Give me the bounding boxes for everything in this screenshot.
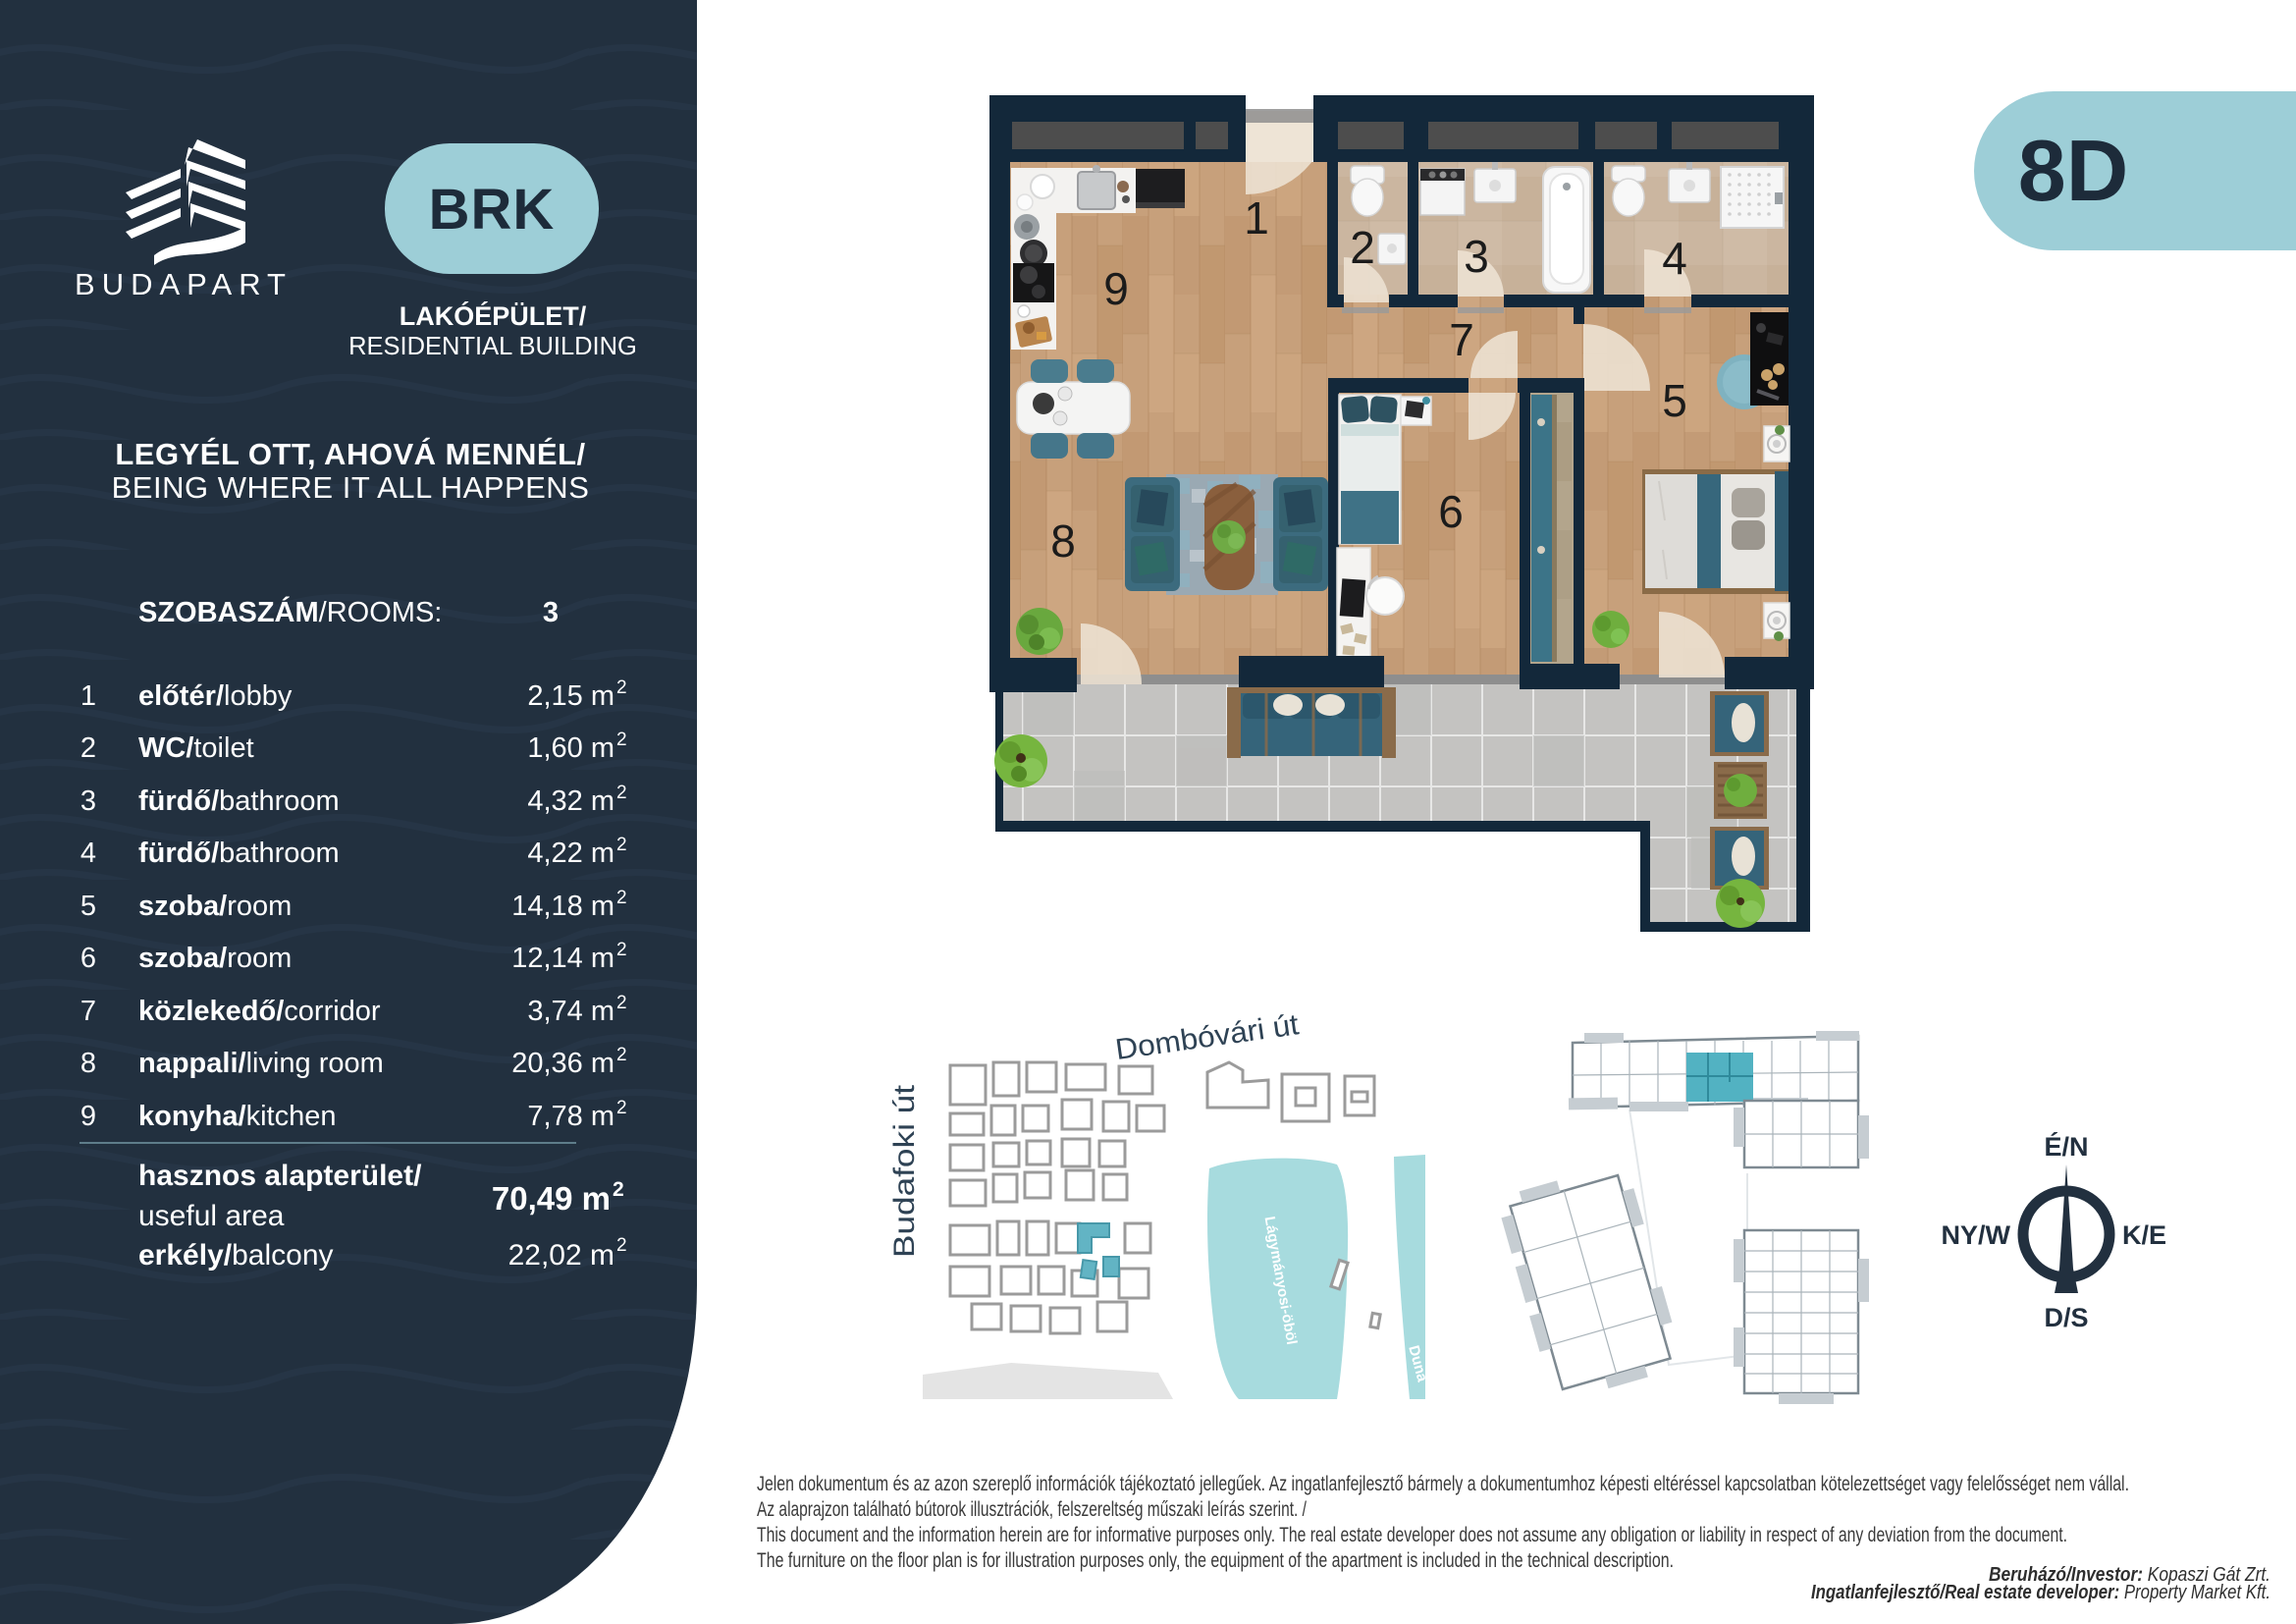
svg-text:BRK: BRK	[429, 178, 556, 242]
svg-text:2: 2	[616, 940, 627, 960]
svg-text:This document and the informat: This document and the information herein…	[757, 1524, 2067, 1546]
svg-text:3: 3	[1464, 231, 1489, 282]
svg-text:K/E: K/E	[2122, 1220, 2166, 1250]
svg-text:nappali/living room: nappali/living room	[138, 1048, 384, 1079]
svg-text:12,14 m: 12,14 m	[511, 943, 614, 974]
svg-text:Jelen dokumentum és az azon sz: Jelen dokumentum és az azon szereplő inf…	[757, 1473, 2129, 1495]
svg-text:6: 6	[80, 943, 96, 974]
svg-text:Ingatlanfejlesztő/Real estate: Ingatlanfejlesztő/Real estate developer:…	[1811, 1582, 2270, 1603]
svg-text:LEGYÉL OTT, AHOVÁ MENNÉL/: LEGYÉL OTT, AHOVÁ MENNÉL/	[115, 437, 585, 471]
svg-text:hasznos alapterület/: hasznos alapterület/	[138, 1160, 422, 1192]
svg-text:2: 2	[616, 677, 627, 698]
svg-text:9: 9	[80, 1101, 96, 1132]
svg-text:BUDAPART: BUDAPART	[75, 267, 293, 301]
svg-text:useful area: useful area	[138, 1200, 285, 1232]
svg-text:SZOBASZÁM/ROOMS:: SZOBASZÁM/ROOMS:	[138, 595, 442, 628]
svg-text:É/N: É/N	[2044, 1131, 2088, 1162]
svg-text:fürdő/bathroom: fürdő/bathroom	[138, 785, 340, 817]
svg-text:2: 2	[1350, 222, 1375, 273]
svg-text:5: 5	[80, 891, 96, 922]
svg-text:8: 8	[80, 1048, 96, 1079]
svg-text:8: 8	[1050, 515, 1076, 567]
svg-text:2: 2	[616, 1098, 627, 1118]
svg-text:4: 4	[1662, 233, 1687, 284]
svg-text:1: 1	[1244, 192, 1269, 244]
svg-text:2: 2	[616, 1045, 627, 1065]
svg-text:NY/W: NY/W	[1942, 1220, 2011, 1250]
svg-text:6: 6	[1438, 486, 1464, 537]
svg-text:The furniture on the floor pla: The furniture on the floor plan is for i…	[757, 1549, 1674, 1572]
svg-text:2: 2	[616, 730, 627, 750]
svg-text:70,49 m: 70,49 m	[492, 1180, 611, 1217]
svg-text:8D: 8D	[2018, 122, 2129, 219]
svg-text:Az alaprajzon található bútoro: Az alaprajzon található bútorok illusztr…	[757, 1498, 1307, 1521]
svg-text:7: 7	[80, 996, 96, 1027]
svg-text:4,32 m: 4,32 m	[527, 785, 614, 817]
svg-text:WC/toilet: WC/toilet	[138, 732, 254, 764]
svg-text:9: 9	[1103, 263, 1129, 314]
svg-text:5: 5	[1662, 375, 1687, 426]
svg-text:3: 3	[543, 597, 559, 628]
svg-text:20,36 m: 20,36 m	[511, 1048, 614, 1079]
svg-text:3: 3	[80, 785, 96, 817]
svg-text:1: 1	[80, 680, 96, 712]
svg-text:4: 4	[80, 838, 96, 869]
svg-text:4,22 m: 4,22 m	[527, 838, 614, 869]
svg-text:szoba/room: szoba/room	[138, 891, 292, 922]
svg-text:2: 2	[616, 888, 627, 908]
svg-text:Budafoki út: Budafoki út	[888, 1084, 921, 1258]
svg-text:3,74 m: 3,74 m	[527, 996, 614, 1027]
svg-text:2: 2	[616, 1235, 627, 1256]
svg-text:erkély/balcony: erkély/balcony	[138, 1239, 334, 1272]
svg-text:közlekedő/corridor: közlekedő/corridor	[138, 996, 381, 1027]
svg-text:2: 2	[616, 783, 627, 803]
svg-text:fürdő/bathroom: fürdő/bathroom	[138, 838, 340, 869]
svg-text:22,02 m: 22,02 m	[508, 1239, 614, 1272]
svg-text:2: 2	[616, 993, 627, 1013]
svg-text:D/S: D/S	[2044, 1303, 2088, 1332]
svg-text:szoba/room: szoba/room	[138, 943, 292, 974]
svg-text:2: 2	[80, 732, 96, 764]
svg-text:14,18 m: 14,18 m	[511, 891, 614, 922]
svg-text:2: 2	[616, 835, 627, 855]
svg-text:2,15 m: 2,15 m	[527, 680, 614, 712]
svg-text:7: 7	[1449, 314, 1474, 365]
svg-text:1,60 m: 1,60 m	[527, 732, 614, 764]
svg-text:RESIDENTIAL BUILDING: RESIDENTIAL BUILDING	[348, 333, 637, 360]
svg-text:BEING WHERE IT ALL HAPPENS: BEING WHERE IT ALL HAPPENS	[112, 470, 590, 505]
svg-text:konyha/kitchen: konyha/kitchen	[138, 1101, 336, 1132]
svg-text:LAKÓÉPÜLET/: LAKÓÉPÜLET/	[400, 300, 587, 331]
svg-text:előtér/lobby: előtér/lobby	[138, 680, 293, 712]
svg-text:7,78 m: 7,78 m	[527, 1101, 614, 1132]
svg-text:2: 2	[613, 1178, 624, 1201]
